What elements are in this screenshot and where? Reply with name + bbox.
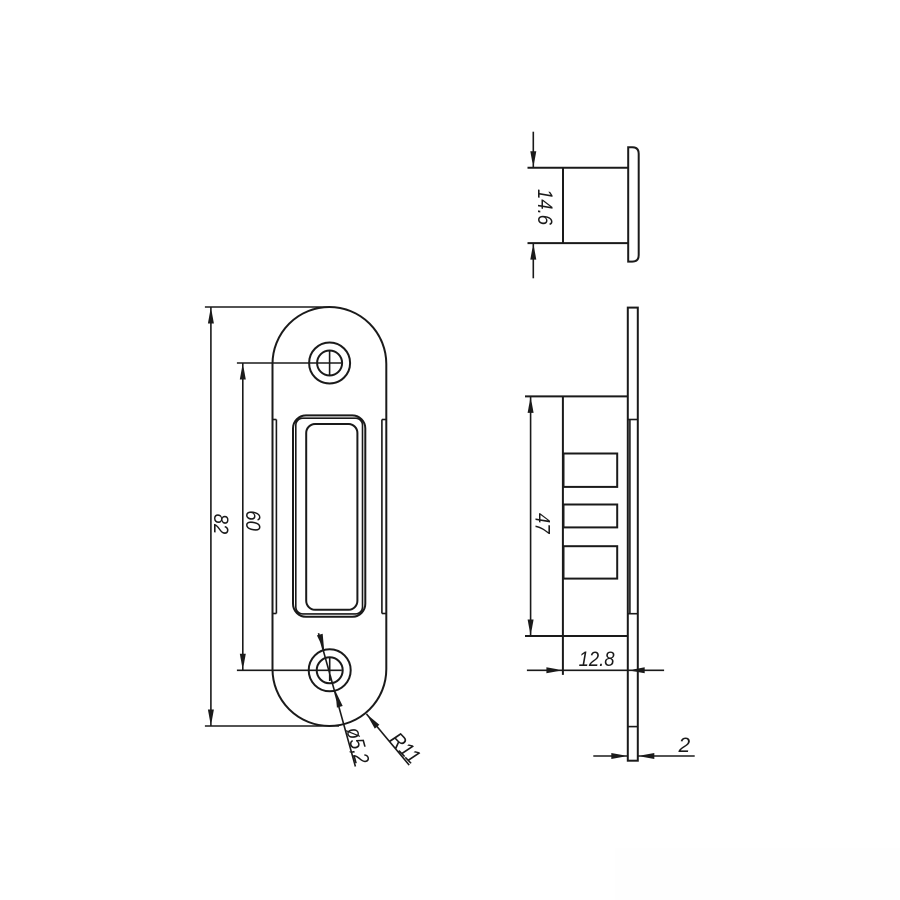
svg-text:60: 60: [241, 510, 264, 531]
svg-text:47: 47: [531, 513, 554, 535]
svg-text:14.6: 14.6: [533, 189, 556, 225]
svg-text:2: 2: [678, 734, 691, 757]
svg-text:12.8: 12.8: [579, 648, 615, 671]
svg-text:82: 82: [209, 514, 232, 535]
